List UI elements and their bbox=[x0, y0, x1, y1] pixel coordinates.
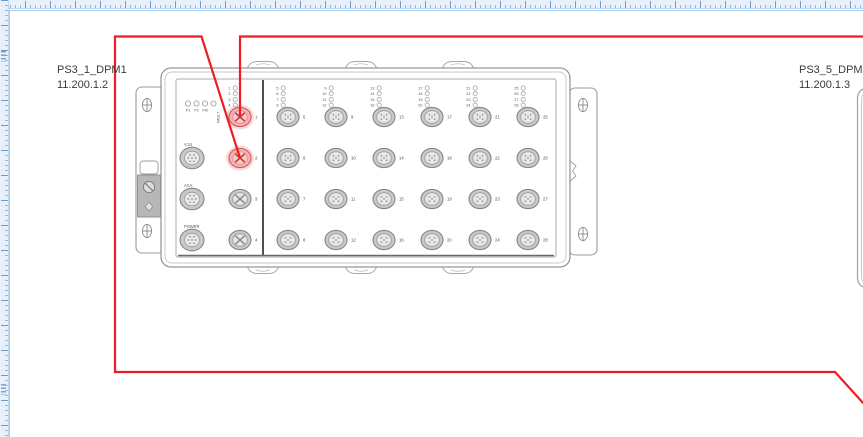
port-pin-icon bbox=[335, 198, 337, 200]
port-pin-icon bbox=[386, 159, 388, 161]
port-led-number: 19 bbox=[418, 98, 422, 102]
port-pin-icon bbox=[338, 155, 340, 157]
port-pin-icon bbox=[525, 196, 527, 198]
port-pin-icon bbox=[477, 114, 479, 116]
port-pin-icon bbox=[386, 155, 388, 157]
port-pin-icon bbox=[477, 241, 479, 243]
screw-hole-icon bbox=[142, 224, 151, 237]
port-number-label: 22 bbox=[495, 156, 500, 161]
port-pin-icon bbox=[429, 159, 431, 161]
device-label-ps3-1[interactable]: PS3_1_DPM1 11.200.1.2 bbox=[57, 63, 127, 93]
port-pin-icon bbox=[290, 241, 292, 243]
port-led-indicator bbox=[233, 97, 237, 101]
port-pin-icon bbox=[429, 118, 431, 120]
ruler-label-mark bbox=[1, 384, 6, 395]
port-pin-icon bbox=[482, 196, 484, 198]
connector-pin-icon bbox=[189, 195, 191, 197]
port-pin-icon bbox=[482, 200, 484, 202]
port-pin-icon bbox=[477, 200, 479, 202]
port-pin-icon bbox=[287, 198, 289, 200]
port-led-number: 1 bbox=[228, 86, 230, 90]
port-pin-icon bbox=[482, 114, 484, 116]
port-pin-icon bbox=[431, 116, 433, 118]
port-led-indicator bbox=[521, 103, 525, 107]
port-pin-icon bbox=[383, 157, 385, 159]
port-pin-icon bbox=[477, 159, 479, 161]
port-number-label: 20 bbox=[447, 238, 452, 243]
clip-latch bbox=[140, 161, 158, 174]
port-number-label: 11 bbox=[351, 197, 356, 202]
port-pin-icon bbox=[530, 118, 532, 120]
port-pin-icon bbox=[429, 237, 431, 239]
port-pin-icon bbox=[290, 237, 292, 239]
screw-hole-icon bbox=[578, 98, 587, 111]
port-number-label: 27 bbox=[543, 197, 548, 202]
port-pin-icon bbox=[530, 155, 532, 157]
port-pin-icon bbox=[290, 155, 292, 157]
port-led-indicator bbox=[281, 97, 285, 101]
status-led-p2 bbox=[194, 101, 199, 106]
port-number-label: 24 bbox=[495, 238, 500, 243]
port-pin-icon bbox=[333, 118, 335, 120]
connector-pin-icon bbox=[191, 198, 193, 200]
port-led-number: 6 bbox=[276, 92, 278, 96]
port-led-indicator bbox=[425, 92, 429, 96]
port-number-label: 21 bbox=[495, 115, 500, 120]
port-pin-icon bbox=[525, 114, 527, 116]
port-led-indicator bbox=[425, 97, 429, 101]
port-led-number: 17 bbox=[418, 86, 422, 90]
port-led-number: 24 bbox=[466, 104, 470, 108]
port-pin-icon bbox=[338, 200, 340, 202]
port-led-number: 11 bbox=[323, 98, 327, 102]
port-led-number: 9 bbox=[324, 86, 326, 90]
port-pin-icon bbox=[479, 157, 481, 159]
port-pin-icon bbox=[381, 155, 383, 157]
port-pin-icon bbox=[477, 196, 479, 198]
port-number-label: 13 bbox=[399, 115, 404, 120]
connector-pin-icon bbox=[193, 154, 195, 156]
port-led-number: 10 bbox=[322, 92, 326, 96]
status-led-fm bbox=[202, 101, 207, 106]
port-pin-icon bbox=[386, 196, 388, 198]
status-led-label-vertical: FAULT bbox=[217, 111, 221, 123]
port-pin-icon bbox=[333, 114, 335, 116]
port-number-label: 15 bbox=[399, 197, 404, 202]
port-led-number: 5 bbox=[276, 86, 278, 90]
port-pin-icon bbox=[431, 198, 433, 200]
port-pin-icon bbox=[381, 237, 383, 239]
status-led-label: P1 bbox=[186, 109, 191, 113]
port-number-label: 26 bbox=[543, 156, 548, 161]
port-pin-icon bbox=[386, 200, 388, 202]
connector-pin-icon bbox=[193, 195, 195, 197]
port-led-indicator bbox=[425, 86, 429, 90]
port-pin-icon bbox=[381, 241, 383, 243]
port-led-indicator bbox=[233, 86, 237, 90]
port-pin-icon bbox=[381, 118, 383, 120]
port-pin-icon bbox=[333, 159, 335, 161]
port-pin-icon bbox=[434, 155, 436, 157]
port-pin-icon bbox=[335, 239, 337, 241]
port-led-indicator bbox=[281, 92, 285, 96]
port-pin-icon bbox=[381, 159, 383, 161]
connector-pin-icon bbox=[189, 154, 191, 156]
status-led-p1 bbox=[185, 101, 190, 106]
port-pin-icon bbox=[381, 196, 383, 198]
port-pin-icon bbox=[482, 155, 484, 157]
horizontal-ruler bbox=[0, 0, 863, 9]
status-led-fault bbox=[211, 101, 216, 106]
port-led-number: 28 bbox=[514, 104, 518, 108]
port-pin-icon bbox=[386, 241, 388, 243]
port-led-indicator bbox=[377, 103, 381, 107]
port-pin-icon bbox=[429, 241, 431, 243]
port-pin-icon bbox=[530, 200, 532, 202]
screw-hole-icon bbox=[142, 98, 151, 111]
port-pin-icon bbox=[285, 241, 287, 243]
port-led-indicator bbox=[329, 103, 333, 107]
device-name: PS3_5_DPM1 bbox=[799, 63, 863, 78]
port-pin-icon bbox=[429, 114, 431, 116]
port-led-number: 26 bbox=[514, 92, 518, 96]
port-pin-icon bbox=[525, 118, 527, 120]
port-pin-icon bbox=[525, 155, 527, 157]
port-pin-icon bbox=[434, 237, 436, 239]
connector-pin-icon bbox=[187, 239, 189, 241]
port-pin-icon bbox=[285, 114, 287, 116]
port-number-label: 19 bbox=[447, 197, 452, 202]
port-pin-icon bbox=[383, 198, 385, 200]
port-pin-icon bbox=[386, 118, 388, 120]
port-pin-icon bbox=[527, 239, 529, 241]
port-pin-icon bbox=[479, 239, 481, 241]
port-led-indicator bbox=[473, 103, 477, 107]
port-pin-icon bbox=[429, 200, 431, 202]
port-led-number: 3 bbox=[228, 98, 230, 102]
device-name: PS3_1_DPM1 bbox=[57, 63, 127, 78]
port-led-indicator bbox=[329, 86, 333, 90]
port-pin-icon bbox=[527, 116, 529, 118]
device-shape-ps3-5[interactable] bbox=[858, 88, 863, 288]
port-pin-icon bbox=[530, 114, 532, 116]
status-led-label: P2 bbox=[194, 109, 199, 113]
port-pin-icon bbox=[482, 118, 484, 120]
port-pin-icon bbox=[381, 200, 383, 202]
port-led-number: 16 bbox=[370, 104, 374, 108]
port-led-number: 22 bbox=[466, 92, 470, 96]
port-pin-icon bbox=[285, 155, 287, 157]
connector-pin-icon bbox=[195, 198, 197, 200]
port-pin-icon bbox=[290, 196, 292, 198]
connector-pin-icon bbox=[195, 157, 197, 159]
port-pin-icon bbox=[482, 159, 484, 161]
drawing-canvas: 1234567891011121314151617181920212223242… bbox=[0, 0, 863, 437]
port-pin-icon bbox=[525, 237, 527, 239]
port-pin-icon bbox=[333, 241, 335, 243]
port-pin-icon bbox=[431, 239, 433, 241]
port-pin-icon bbox=[285, 118, 287, 120]
port-led-number: 7 bbox=[276, 98, 278, 102]
port-pin-icon bbox=[287, 157, 289, 159]
port-led-indicator bbox=[521, 86, 525, 90]
connector-pin-icon bbox=[193, 201, 195, 203]
port-pin-icon bbox=[530, 159, 532, 161]
connector-pin-icon bbox=[189, 160, 191, 162]
port-pin-icon bbox=[290, 118, 292, 120]
port-led-indicator bbox=[233, 92, 237, 96]
port-led-indicator bbox=[473, 92, 477, 96]
service-connector-label: ACA bbox=[184, 183, 193, 188]
port-pin-icon bbox=[333, 155, 335, 157]
screw-hole-icon bbox=[578, 227, 587, 240]
diagram-scene: 1234567891011121314151617181920212223242… bbox=[0, 0, 863, 437]
port-led-indicator bbox=[329, 97, 333, 101]
connector-pin-icon bbox=[193, 160, 195, 162]
port-pin-icon bbox=[434, 118, 436, 120]
port-pin-icon bbox=[290, 114, 292, 116]
port-number-label: 23 bbox=[495, 197, 500, 202]
port-pin-icon bbox=[290, 200, 292, 202]
port-pin-icon bbox=[333, 237, 335, 239]
connector-pin-icon bbox=[189, 242, 191, 244]
port-pin-icon bbox=[287, 116, 289, 118]
port-number-label: 28 bbox=[543, 238, 548, 243]
port-led-number: 13 bbox=[370, 86, 374, 90]
port-pin-icon bbox=[434, 159, 436, 161]
port-led-indicator bbox=[521, 97, 525, 101]
port-pin-icon bbox=[381, 114, 383, 116]
connector-pin-icon bbox=[191, 157, 193, 159]
port-number-label: 18 bbox=[447, 156, 452, 161]
port-pin-icon bbox=[335, 116, 337, 118]
port-pin-icon bbox=[482, 241, 484, 243]
port-pin-icon bbox=[434, 241, 436, 243]
port-led-number: 4 bbox=[228, 104, 230, 108]
connector-pin-icon bbox=[189, 201, 191, 203]
port-pin-icon bbox=[530, 196, 532, 198]
port-number-label: 14 bbox=[399, 156, 404, 161]
port-led-number: 27 bbox=[514, 98, 518, 102]
port-pin-icon bbox=[338, 241, 340, 243]
connector-pin-icon bbox=[187, 157, 189, 159]
port-led-number: 2 bbox=[228, 92, 230, 96]
port-pin-icon bbox=[525, 241, 527, 243]
device-address: 11.200.1.3 bbox=[799, 78, 863, 93]
port-pin-icon bbox=[285, 200, 287, 202]
connector-pin-icon bbox=[193, 242, 195, 244]
port-pin-icon bbox=[333, 200, 335, 202]
port-pin-icon bbox=[479, 116, 481, 118]
port-pin-icon bbox=[287, 239, 289, 241]
port-pin-icon bbox=[434, 200, 436, 202]
port-pin-icon bbox=[285, 237, 287, 239]
port-pin-icon bbox=[338, 118, 340, 120]
port-pin-icon bbox=[333, 196, 335, 198]
port-pin-icon bbox=[285, 159, 287, 161]
port-number-label: 17 bbox=[447, 115, 452, 120]
port-pin-icon bbox=[434, 196, 436, 198]
port-led-number: 8 bbox=[276, 104, 278, 108]
port-led-indicator bbox=[377, 86, 381, 90]
port-pin-icon bbox=[429, 155, 431, 157]
ruler-label-mark bbox=[1, 51, 6, 62]
port-pin-icon bbox=[482, 237, 484, 239]
port-pin-icon bbox=[477, 118, 479, 120]
connector-pin-icon bbox=[193, 236, 195, 238]
port-pin-icon bbox=[477, 155, 479, 157]
port-led-indicator bbox=[329, 92, 333, 96]
port-pin-icon bbox=[338, 114, 340, 116]
port-led-number: 21 bbox=[466, 86, 470, 90]
port-led-indicator bbox=[473, 86, 477, 90]
port-led-indicator bbox=[377, 92, 381, 96]
port-led-indicator bbox=[377, 97, 381, 101]
port-pin-icon bbox=[525, 200, 527, 202]
port-number-label: 10 bbox=[351, 156, 356, 161]
port-led-indicator bbox=[425, 103, 429, 107]
service-connector-label: POWER bbox=[184, 224, 200, 229]
connector-pin-icon bbox=[189, 236, 191, 238]
port-pin-icon bbox=[386, 237, 388, 239]
port-pin-icon bbox=[335, 157, 337, 159]
port-led-number: 15 bbox=[370, 98, 374, 102]
din-rail-bracket bbox=[136, 87, 164, 253]
port-pin-icon bbox=[338, 237, 340, 239]
service-connector-label: V.24 bbox=[184, 142, 193, 147]
port-led-number: 20 bbox=[418, 104, 422, 108]
port-pin-icon bbox=[383, 239, 385, 241]
port-number-label: 12 bbox=[351, 238, 356, 243]
port-pin-icon bbox=[338, 196, 340, 198]
port-number-label: 25 bbox=[543, 115, 548, 120]
port-led-indicator bbox=[521, 92, 525, 96]
port-pin-icon bbox=[285, 196, 287, 198]
port-pin-icon bbox=[431, 157, 433, 159]
port-led-indicator bbox=[281, 103, 285, 107]
mount-flange-right bbox=[569, 88, 597, 255]
port-led-number: 23 bbox=[466, 98, 470, 102]
port-pin-icon bbox=[290, 159, 292, 161]
port-pin-icon bbox=[527, 198, 529, 200]
port-pin-icon bbox=[386, 114, 388, 116]
port-pin-icon bbox=[477, 237, 479, 239]
port-pin-icon bbox=[479, 198, 481, 200]
port-led-number: 14 bbox=[370, 92, 374, 96]
port-pin-icon bbox=[434, 114, 436, 116]
port-pin-icon bbox=[338, 159, 340, 161]
port-pin-icon bbox=[429, 196, 431, 198]
screw-icon bbox=[143, 181, 154, 192]
status-led-label: FM bbox=[202, 109, 207, 113]
device-address: 11.200.1.2 bbox=[57, 78, 127, 93]
port-pin-icon bbox=[525, 159, 527, 161]
connector-pin-icon bbox=[195, 239, 197, 241]
port-pin-icon bbox=[527, 157, 529, 159]
port-number-label: 16 bbox=[399, 238, 404, 243]
connector-pin-icon bbox=[187, 198, 189, 200]
connector-pin-icon bbox=[191, 239, 193, 241]
port-led-indicator bbox=[281, 86, 285, 90]
device-label-ps3-5[interactable]: PS3_5_DPM1 11.200.1.3 bbox=[799, 63, 863, 93]
port-led-number: 12 bbox=[322, 104, 326, 108]
port-pin-icon bbox=[383, 116, 385, 118]
vertical-ruler bbox=[0, 0, 9, 437]
port-pin-icon bbox=[530, 237, 532, 239]
port-pin-icon bbox=[530, 241, 532, 243]
port-led-number: 18 bbox=[418, 92, 422, 96]
port-led-number: 25 bbox=[514, 86, 518, 90]
port-led-indicator bbox=[473, 97, 477, 101]
